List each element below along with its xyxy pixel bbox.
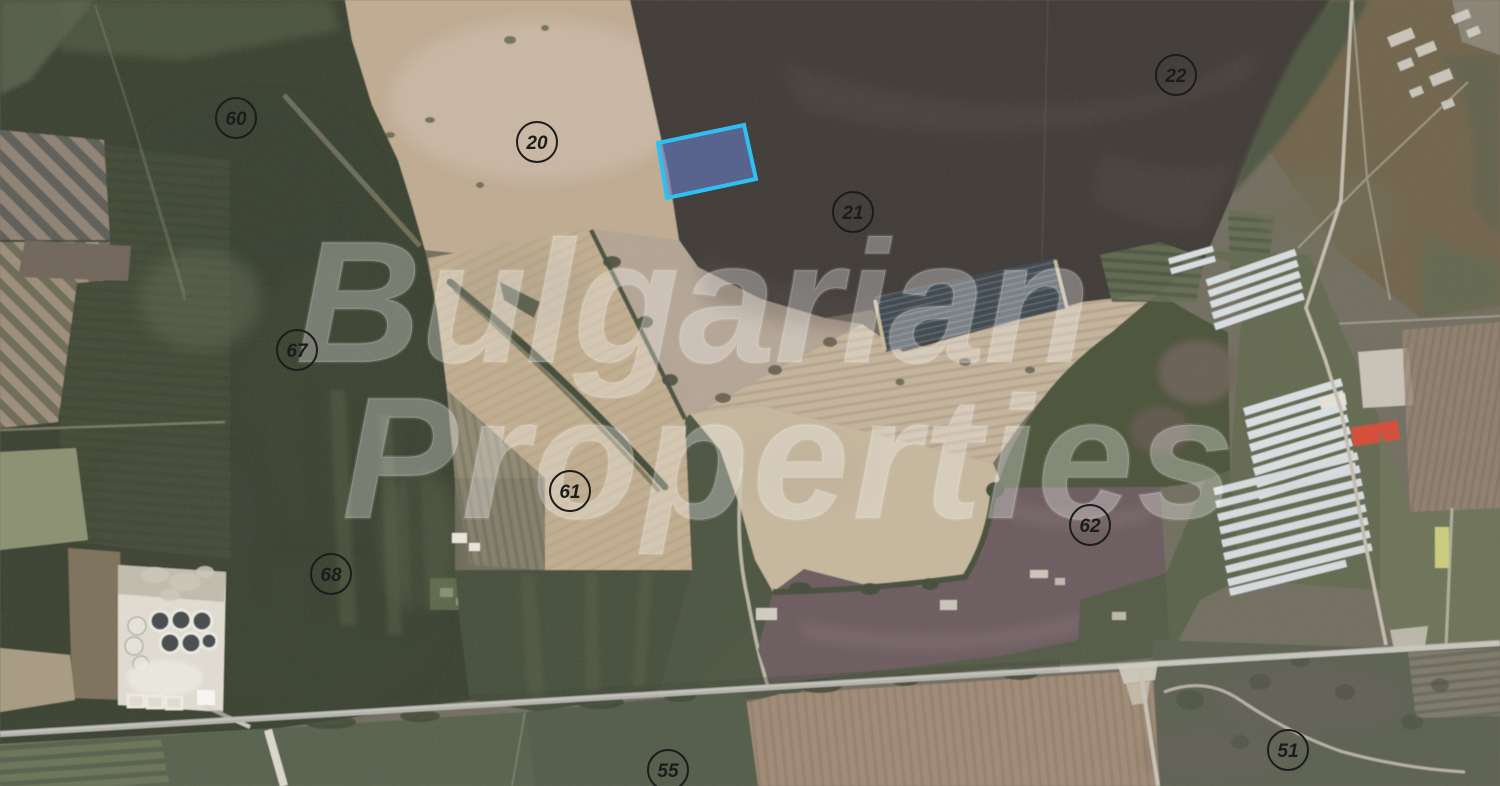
svg-text:21: 21	[841, 203, 863, 224]
svg-text:55: 55	[657, 761, 679, 782]
svg-text:67: 67	[286, 341, 309, 362]
svg-text:22: 22	[1164, 66, 1187, 87]
svg-text:60: 60	[225, 109, 247, 130]
svg-text:68: 68	[320, 565, 342, 586]
svg-text:62: 62	[1079, 516, 1101, 537]
svg-text:20: 20	[525, 133, 548, 154]
svg-text:51: 51	[1277, 741, 1298, 762]
svg-text:61: 61	[559, 482, 580, 503]
svg-text:Properties: Properties	[342, 360, 1238, 555]
